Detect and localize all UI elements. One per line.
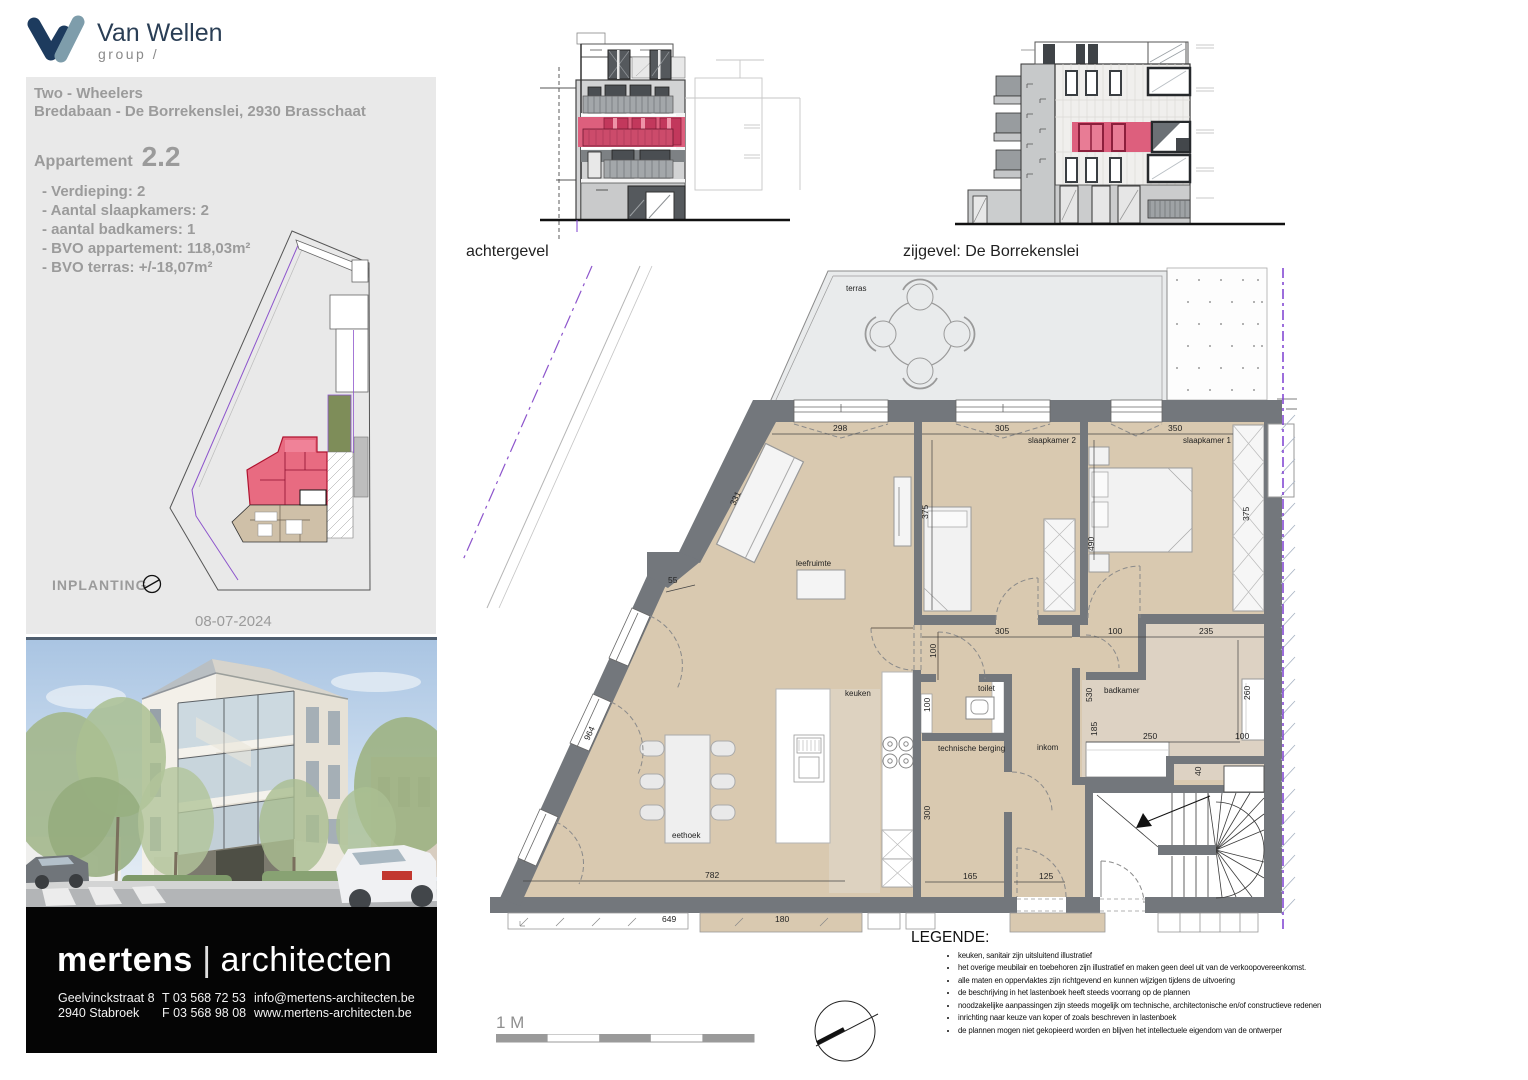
svg-text:100: 100 [928,644,938,658]
svg-text:100: 100 [1235,731,1249,741]
svg-text:305: 305 [995,626,1009,636]
svg-text:250: 250 [1143,731,1157,741]
svg-text:375: 375 [920,505,930,519]
svg-text:leefruimte: leefruimte [796,559,832,568]
svg-text:490: 490 [1086,537,1096,551]
svg-text:55: 55 [668,575,678,585]
svg-text:slaapkamer 1: slaapkamer 1 [1183,436,1232,445]
svg-text:185: 185 [1089,722,1099,736]
svg-text:eethoek: eethoek [672,831,701,840]
svg-text:298: 298 [833,423,847,433]
svg-text:technische berging: technische berging [938,744,1005,753]
svg-text:slaapkamer 2: slaapkamer 2 [1028,436,1077,445]
svg-text:keuken: keuken [845,689,871,698]
svg-text:125: 125 [1039,871,1053,881]
svg-text:235: 235 [1199,626,1213,636]
svg-text:100: 100 [922,698,932,712]
svg-text:badkamer: badkamer [1104,686,1140,695]
svg-text:782: 782 [705,870,719,880]
svg-text:Van Wellen: Van Wellen [97,19,223,47]
svg-text:toilet: toilet [978,684,996,693]
svg-text:649: 649 [662,914,676,924]
svg-text:165: 165 [963,871,977,881]
svg-text:375: 375 [1241,507,1251,521]
svg-text:305: 305 [995,423,1009,433]
svg-text:100: 100 [1108,626,1122,636]
svg-text:group /: group / [98,46,159,62]
svg-text:350: 350 [1168,423,1182,433]
svg-text:530: 530 [1084,688,1094,702]
svg-text:terras: terras [846,284,866,293]
svg-text:40: 40 [1193,766,1203,776]
svg-text:260: 260 [1242,686,1252,700]
svg-text:300: 300 [922,806,932,820]
svg-text:inkom: inkom [1037,743,1059,752]
svg-text:180: 180 [775,914,789,924]
